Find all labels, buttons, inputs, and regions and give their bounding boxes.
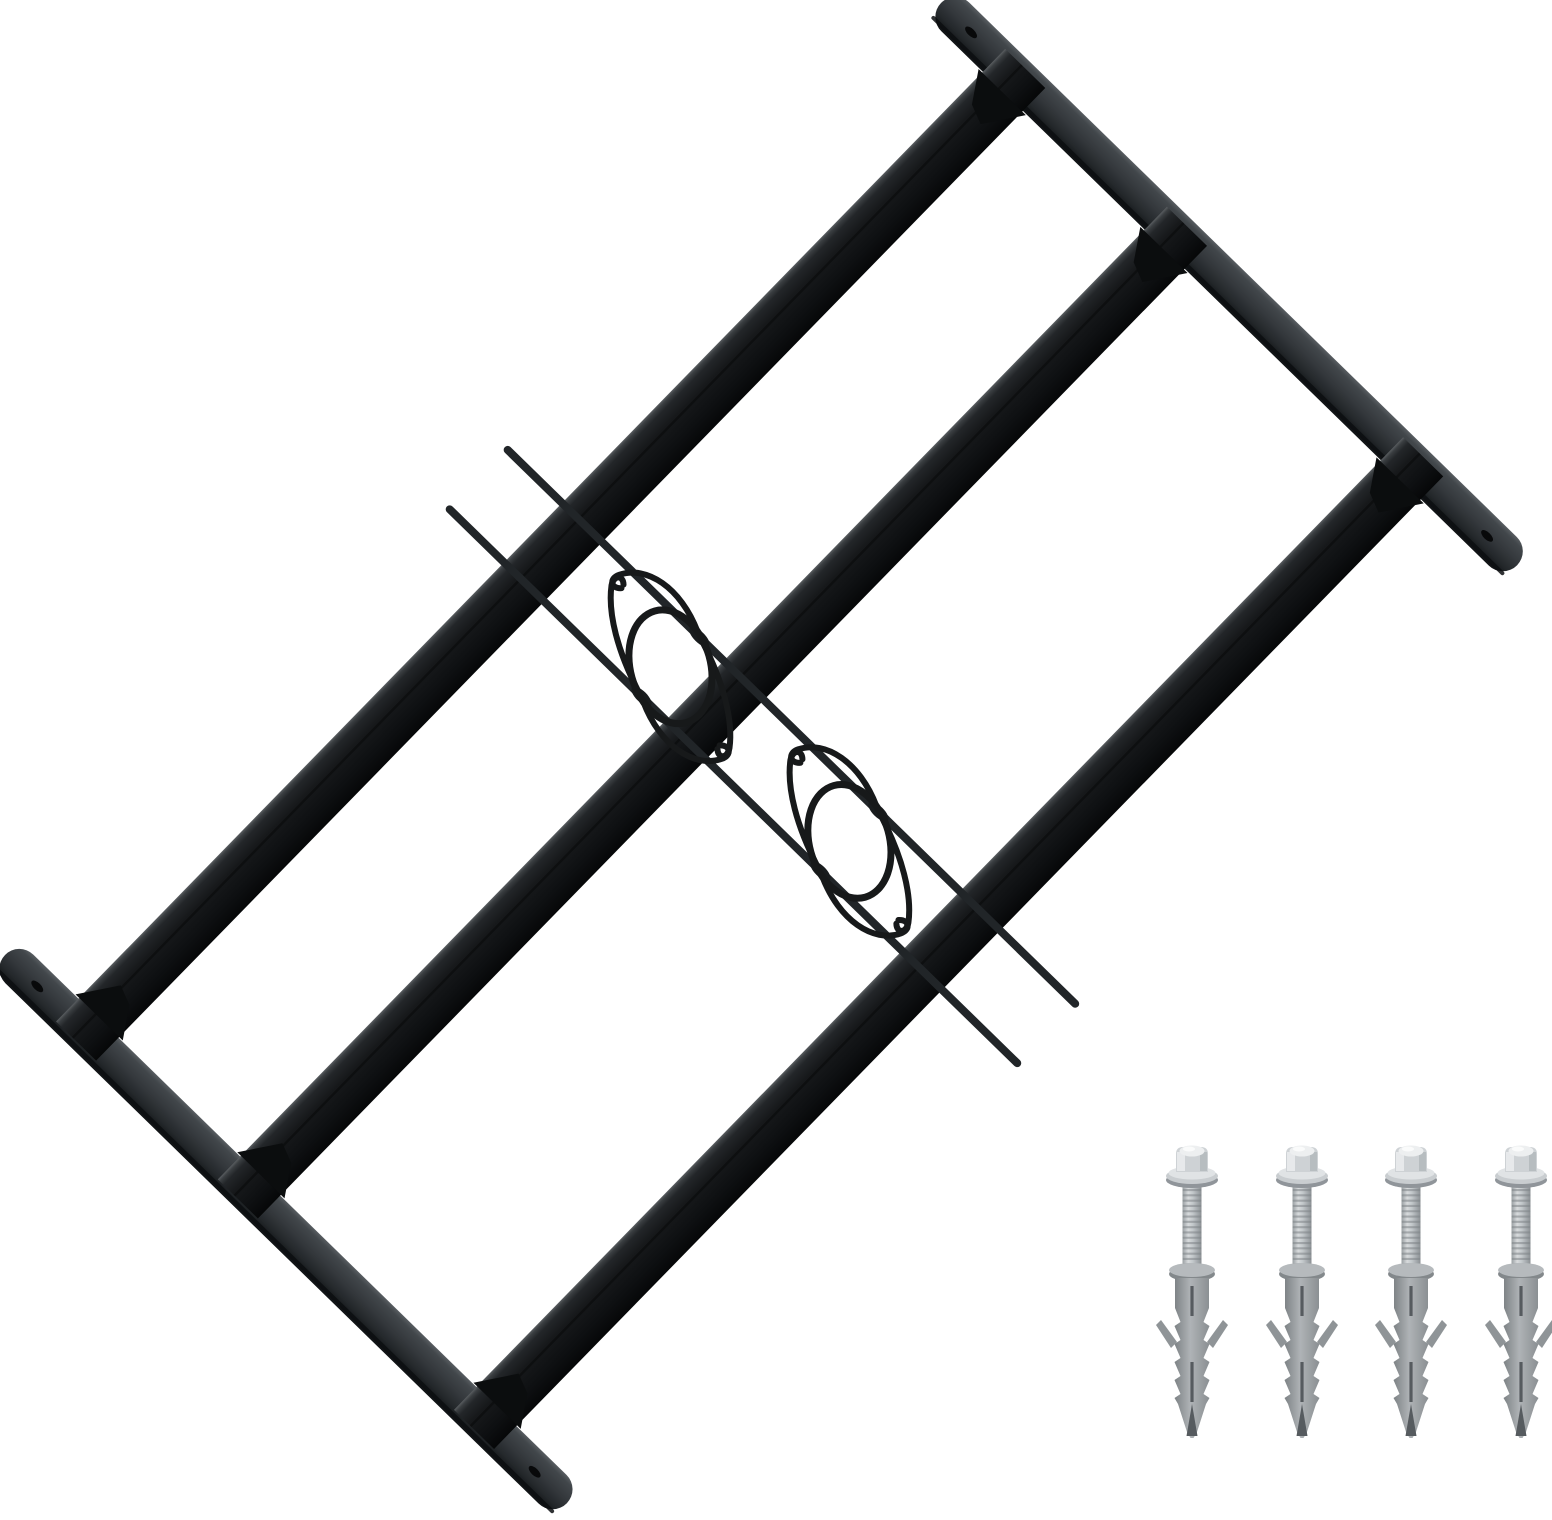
- wall-plug-slot-lower: [1409, 1362, 1412, 1402]
- screw-thread-ridge: [1183, 1242, 1202, 1244]
- screw-thread-ridge: [1402, 1216, 1421, 1218]
- ornament-hook-upper-left: [789, 730, 885, 824]
- wall-plug-wing-left: [1266, 1320, 1287, 1348]
- screw-thread-ridge: [1183, 1231, 1202, 1233]
- screw-thread-ridge: [1512, 1189, 1531, 1191]
- screw-thread-ridge: [1402, 1210, 1421, 1212]
- wall-plug-slot-lower: [1519, 1362, 1522, 1402]
- fixing-screw-1: [1156, 1146, 1228, 1439]
- ornament-hook-lower-right: [814, 858, 910, 952]
- screw-thread-ridge: [1512, 1231, 1531, 1233]
- ornament-hook-upper-left: [610, 556, 706, 650]
- wall-plug-slot-upper: [1190, 1286, 1193, 1316]
- wall-plug-wing-right: [1426, 1320, 1447, 1348]
- plug-collar: [1388, 1263, 1434, 1277]
- hex-facet-dark: [1200, 1152, 1207, 1171]
- screw-thread-ridge: [1402, 1221, 1421, 1223]
- screw-thread-ridge: [1183, 1226, 1202, 1228]
- plug-collar: [1169, 1263, 1215, 1277]
- screw-thread-ridge: [1512, 1205, 1531, 1207]
- screw-thread-ridge: [1402, 1253, 1421, 1255]
- screw-thread-ridge: [1293, 1216, 1312, 1218]
- wall-plug-wing-left: [1156, 1320, 1177, 1348]
- wall-plug-slot-upper: [1519, 1286, 1522, 1316]
- screw-thread-ridge: [1293, 1221, 1312, 1223]
- screw-thread-ridge: [1402, 1231, 1421, 1233]
- hex-facet-dark: [1529, 1152, 1536, 1171]
- screw-thread-ridge: [1512, 1221, 1531, 1223]
- screw-thread-ridge: [1183, 1216, 1202, 1218]
- screw-thread-ridge: [1293, 1210, 1312, 1212]
- screw-thread-ridge: [1293, 1189, 1312, 1191]
- screw-thread-ridge: [1293, 1205, 1312, 1207]
- screw-thread-ridge: [1293, 1200, 1312, 1202]
- wall-plug-slot-lower: [1190, 1362, 1193, 1402]
- cross-rod-lower: [444, 504, 1023, 1069]
- screw-thread-ridge: [1402, 1226, 1421, 1228]
- product-render-svg: [0, 0, 1552, 1520]
- wall-plug-wing-right: [1536, 1320, 1552, 1348]
- screw-thread-ridge: [1402, 1200, 1421, 1202]
- screw-thread-ridge: [1183, 1205, 1202, 1207]
- fixing-screw-3: [1375, 1146, 1447, 1439]
- screw-thread-ridge: [1512, 1194, 1531, 1196]
- screw-thread-ridge: [1293, 1226, 1312, 1228]
- fixing-screw-4: [1485, 1146, 1552, 1439]
- screw-thread-ridge: [1293, 1231, 1312, 1233]
- screw-thread-ridge: [1183, 1194, 1202, 1196]
- screw-thread-ridge: [1512, 1247, 1531, 1249]
- head-dome-highlight: [1512, 1147, 1524, 1152]
- hex-facet-dark: [1310, 1152, 1317, 1171]
- cross-rod-upper: [502, 444, 1081, 1009]
- screw-thread-ridge: [1512, 1237, 1531, 1239]
- head-dome-highlight: [1402, 1147, 1414, 1152]
- screw-thread-ridge: [1293, 1258, 1312, 1260]
- wall-plug-slot-upper: [1300, 1286, 1303, 1316]
- wall-plug-wing-right: [1207, 1320, 1228, 1348]
- screw-thread-ridge: [1512, 1258, 1531, 1260]
- wall-plug-wing-left: [1375, 1320, 1396, 1348]
- screw-thread-ridge: [1293, 1242, 1312, 1244]
- screw-thread-ridge: [1183, 1210, 1202, 1212]
- wall-plug-slot-upper: [1409, 1286, 1412, 1316]
- screw-thread-ridge: [1183, 1200, 1202, 1202]
- screw-thread-ridge: [1183, 1253, 1202, 1255]
- screw-thread-ridge: [1512, 1226, 1531, 1228]
- screw-thread-ridge: [1183, 1258, 1202, 1260]
- screw-thread-ridge: [1512, 1200, 1531, 1202]
- head-dome-highlight: [1183, 1147, 1195, 1152]
- hex-facet-dark: [1419, 1152, 1426, 1171]
- screw-thread-ridge: [1293, 1194, 1312, 1196]
- screw-thread-ridge: [1293, 1253, 1312, 1255]
- screw-thread-ridge: [1183, 1247, 1202, 1249]
- screw-thread-ridge: [1183, 1237, 1202, 1239]
- fixing-screw-2: [1266, 1146, 1338, 1439]
- screw-thread-ridge: [1293, 1247, 1312, 1249]
- product-image: [0, 0, 1552, 1520]
- screw-thread-ridge: [1512, 1216, 1531, 1218]
- ornament-oval: [795, 775, 903, 908]
- screw-thread-ridge: [1402, 1194, 1421, 1196]
- head-dome-highlight: [1293, 1147, 1305, 1152]
- screw-thread-ridge: [1402, 1242, 1421, 1244]
- screw-thread-ridge: [1183, 1221, 1202, 1223]
- screw-thread-ridge: [1512, 1210, 1531, 1212]
- screw-thread-ridge: [1293, 1237, 1312, 1239]
- wall-plug-wing-left: [1485, 1320, 1506, 1348]
- plug-collar: [1498, 1263, 1544, 1277]
- screw-thread-ridge: [1512, 1253, 1531, 1255]
- screw-thread-ridge: [1402, 1247, 1421, 1249]
- screw-thread-ridge: [1402, 1189, 1421, 1191]
- screw-thread-ridge: [1402, 1258, 1421, 1260]
- wall-plug-slot-lower: [1300, 1362, 1303, 1402]
- wall-plug-wing-right: [1317, 1320, 1338, 1348]
- plug-collar: [1279, 1263, 1325, 1277]
- screw-thread-ridge: [1402, 1205, 1421, 1207]
- screw-thread-ridge: [1512, 1242, 1531, 1244]
- screw-thread-ridge: [1183, 1189, 1202, 1191]
- fixing-kit: [1156, 1146, 1552, 1439]
- screw-thread-ridge: [1402, 1237, 1421, 1239]
